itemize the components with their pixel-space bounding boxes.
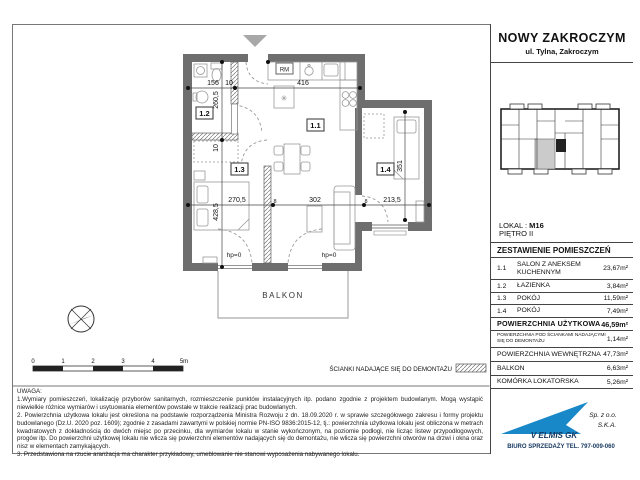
hp-annotation-right: hp=0 bbox=[322, 252, 337, 259]
sofa bbox=[334, 186, 355, 250]
svg-text:213,5: 213,5 bbox=[383, 197, 401, 204]
bathroom-door-leaf bbox=[232, 104, 238, 134]
svg-text:302: 302 bbox=[309, 197, 321, 204]
room-no: 1.2 bbox=[497, 283, 517, 290]
stair-core bbox=[556, 139, 566, 152]
room-area: 3,84m² bbox=[607, 283, 628, 290]
note-item: 1.Wymiary pomieszczeń, lokalizację przyb… bbox=[17, 396, 483, 412]
legend-label: ŚCIANKI NADAJĄCE SIĘ DO DEMONTAŻU bbox=[329, 365, 452, 373]
company-name: V ELMIS GK bbox=[531, 431, 578, 440]
svg-text:2: 2 bbox=[91, 359, 95, 365]
room-no: 1.3 bbox=[497, 295, 517, 302]
developer-logo-box: V ELMIS GK Sp. z o.o. S.K.A. BIURO SPRZE… bbox=[491, 389, 633, 454]
appliance-icon: ✳ bbox=[281, 94, 288, 103]
svg-text:8: 8 bbox=[364, 199, 367, 205]
rooms-table-header: ZESTAWIENIE POMIESZCZEŃ bbox=[491, 243, 633, 258]
room-name: POKÓJ bbox=[517, 295, 604, 303]
logo-arrow-icon bbox=[501, 402, 588, 434]
svg-text:0: 0 bbox=[31, 359, 35, 365]
balcony-label: BALKON bbox=[262, 291, 303, 300]
under-walls-value: 1,14m² bbox=[607, 336, 628, 343]
windows bbox=[218, 222, 408, 271]
under-walls-label: POWIERZCHNIA POD ŚCIANKAMI NADAJĄCYMI SI… bbox=[497, 333, 607, 344]
room-no: 1.1 bbox=[497, 265, 517, 272]
usable-area-row: POWIERZCHNIA UŻYTKOWA 46,59m² bbox=[491, 318, 633, 331]
highlighted-unit bbox=[535, 139, 555, 169]
usable-area-label: POWIERZCHNIA UŻYTKOWA bbox=[497, 320, 601, 328]
svg-text:260,5: 260,5 bbox=[213, 91, 220, 109]
room-name: SALON Z ANEKSEM KUCHENNYM bbox=[517, 261, 603, 277]
storage-area-label: KOMÓRKA LOKATORSKA bbox=[497, 378, 607, 386]
room-label-1-2: 1.2 bbox=[199, 109, 209, 118]
bathroom-door-swing bbox=[234, 105, 262, 133]
legal-form-1: Sp. z o.o. bbox=[589, 412, 617, 419]
floor-number: PIĘTRO II bbox=[499, 229, 533, 238]
project-header: NOWY ZAKROCZYM ul. Tylna, Zakroczym bbox=[491, 24, 633, 63]
room-label-1-1: 1.1 bbox=[310, 121, 320, 130]
hatch-swatch bbox=[456, 364, 486, 372]
project-title: NOWY ZAKROCZYM bbox=[498, 31, 626, 45]
room-area: 11,59m² bbox=[604, 295, 628, 302]
svg-text:416: 416 bbox=[297, 80, 309, 87]
svg-text:428,5: 428,5 bbox=[213, 203, 220, 221]
svg-text:8: 8 bbox=[273, 199, 276, 205]
drawing-sheet: ✳ RM BALKON 156 10 416 260,5 10 bbox=[0, 0, 640, 480]
coffee-table bbox=[307, 206, 322, 232]
svg-text:10: 10 bbox=[213, 144, 220, 152]
svg-text:3: 3 bbox=[121, 359, 125, 365]
note-item: 2. Powierzchnia użytkowa lokalu jest okr… bbox=[17, 412, 483, 452]
sofa-seat bbox=[334, 192, 350, 244]
room-name: ŁAZIENKA bbox=[517, 282, 607, 290]
table-row: 1.1 SALON Z ANEKSEM KUCHENNYM 23,67m² bbox=[491, 258, 633, 280]
sales-office-phone: BIURO SPRZEDAŻY TEL. 797-009-060 bbox=[507, 443, 615, 450]
legend-demountable: ŚCIANKI NADAJĄCE SIĘ DO DEMONTAŻU bbox=[329, 364, 486, 373]
internal-area-row: POWIERZCHNIA WEWNĘTRZNA 47,73m² bbox=[491, 348, 633, 362]
svg-text:5m: 5m bbox=[180, 359, 188, 365]
balcony-area-label: BALKON bbox=[497, 365, 607, 373]
room-area: 23,67m² bbox=[603, 265, 628, 272]
entrance-door-swing bbox=[246, 62, 268, 84]
project-address: ul. Tylna, Zakroczym bbox=[525, 47, 598, 56]
note-item: 3. Przedstawiona na rzucie aranżacja ma … bbox=[17, 451, 483, 459]
svg-text:156: 156 bbox=[207, 80, 219, 87]
balcony: BALKON bbox=[218, 271, 348, 318]
dining-set bbox=[274, 144, 310, 174]
balcony-area-row: BALKON 6,63m² bbox=[491, 362, 633, 376]
notes-title: UWAGA: bbox=[17, 388, 483, 396]
room-label-1-3: 1.3 bbox=[234, 165, 244, 174]
under-walls-row: POWIERZCHNIA POD ŚCIANKAMI NADAJĄCYMI SI… bbox=[491, 331, 633, 348]
storage-area-row: KOMÓRKA LOKATORSKA 5,26m² bbox=[491, 376, 633, 389]
svg-text:270,5: 270,5 bbox=[228, 197, 246, 204]
balcony-door-right-swing bbox=[288, 229, 322, 263]
table-row: 1.4 POKÓJ 7,49m² bbox=[491, 305, 633, 318]
key-plan bbox=[498, 103, 625, 181]
legal-form-2: S.K.A. bbox=[598, 422, 617, 429]
compass-icon bbox=[68, 306, 94, 332]
developer-logo: V ELMIS GK Sp. z o.o. S.K.A. BIURO SPRZE… bbox=[491, 389, 632, 453]
hp-annotation-left: hp=0 bbox=[227, 252, 242, 259]
room13-door-swing bbox=[241, 140, 267, 166]
svg-text:1: 1 bbox=[61, 359, 65, 365]
usable-area-value: 46,59m² bbox=[601, 320, 628, 329]
scale-bar: 0 1 2 3 4 5m bbox=[31, 359, 188, 371]
svg-text:4: 4 bbox=[151, 359, 155, 365]
room-label-1-4: 1.4 bbox=[380, 165, 391, 174]
room-no: 1.4 bbox=[497, 308, 517, 315]
room-area: 7,49m² bbox=[607, 308, 628, 315]
key-plan-box: LOKAL : M16 PIĘTRO II bbox=[491, 63, 633, 243]
svg-text:10: 10 bbox=[225, 80, 233, 87]
title-block: NOWY ZAKROCZYM ul. Tylna, Zakroczym bbox=[490, 24, 633, 454]
table-row: 1.2 ŁAZIENKA 3,84m² bbox=[491, 280, 633, 293]
room-name: POKÓJ bbox=[517, 307, 607, 315]
notes-block: UWAGA: 1.Wymiary pomieszczeń, lokalizacj… bbox=[17, 388, 483, 459]
table-row: 1.3 POKÓJ 11,59m² bbox=[491, 293, 633, 305]
internal-area-value: 47,73m² bbox=[603, 351, 628, 358]
storage-area-value: 5,26m² bbox=[607, 379, 628, 386]
rm-label: RM bbox=[280, 68, 289, 74]
internal-area-label: POWIERZCHNIA WEWNĘTRZNA bbox=[497, 351, 603, 359]
svg-text:351: 351 bbox=[397, 160, 404, 172]
balcony-area-value: 6,63m² bbox=[607, 365, 628, 372]
entrance-arrow-icon bbox=[243, 35, 267, 47]
